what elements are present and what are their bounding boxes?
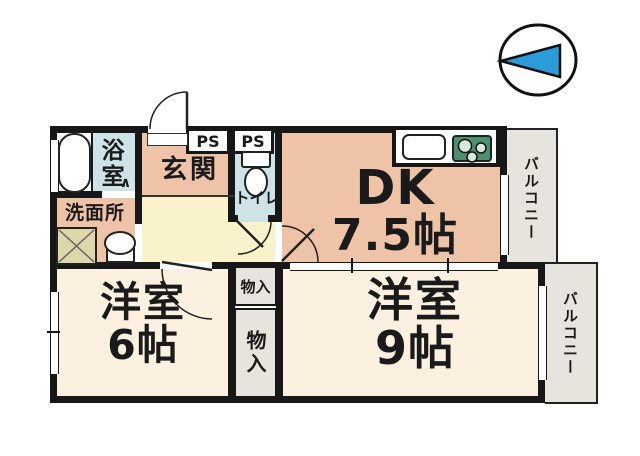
balcony-right: バルコニー (545, 262, 598, 404)
closet-upper-label: 物入 (240, 276, 270, 297)
toilet-label: トイレ (233, 191, 281, 207)
floor-plan: バルコニー バルコニー PS PS 物入 物入 (0, 0, 640, 456)
ps-right-label: PS (241, 132, 264, 151)
balcony-right-label: バルコニー (560, 291, 581, 376)
bathroom-door-mark: ∧ (116, 176, 136, 191)
closet-upper: 物入 (234, 266, 277, 306)
entrance-step (147, 133, 188, 146)
wall-toilet-bottom-left (228, 215, 238, 222)
washroom-label: 洗面所 (54, 204, 136, 224)
entrance-step-line (142, 195, 235, 197)
kitchen-sink (402, 134, 446, 160)
ps-box-right: PS (232, 128, 274, 154)
room9-size: 9帖 (295, 324, 535, 372)
balcony-top: バルコニー (507, 128, 558, 268)
wall-closet-right (276, 262, 283, 403)
ps-box-left: PS (186, 128, 230, 154)
entrance-door-arc (150, 92, 187, 129)
wall-toilet-bottom-right (268, 215, 282, 222)
stove (452, 135, 492, 162)
dk-size: 7.5帖 (287, 213, 503, 259)
room6-label-group: 洋室 6帖 (57, 281, 229, 367)
entrance-door-opening (148, 126, 186, 133)
hall-dk-opening (275, 222, 282, 262)
room9-label-group: 洋室 9帖 (295, 276, 535, 373)
room6-door-opening (160, 262, 212, 269)
balcony-top-label: バルコニー (521, 156, 542, 241)
room9-balcony-window (538, 286, 547, 380)
closet-lower-label: 物入 (241, 330, 270, 376)
north-arrow-icon (500, 25, 576, 95)
closet-lower: 物入 (234, 308, 277, 398)
washing-machine-pan (56, 227, 97, 265)
room6-size: 6帖 (57, 324, 229, 367)
room6-label: 洋室 (57, 281, 229, 324)
room9-label: 洋室 (295, 276, 535, 324)
ps-left-label: PS (196, 132, 219, 151)
wall-bottom (50, 396, 545, 403)
washroom-hall-opening (135, 224, 142, 262)
entrance-label: 玄関 (148, 157, 232, 184)
dk-room9-partition (290, 262, 498, 271)
bathroom-divider-line (91, 126, 93, 198)
dk-label-group: DK 7.5帖 (287, 163, 503, 260)
dk-label: DK (287, 163, 503, 213)
bathroom-window (50, 140, 59, 192)
